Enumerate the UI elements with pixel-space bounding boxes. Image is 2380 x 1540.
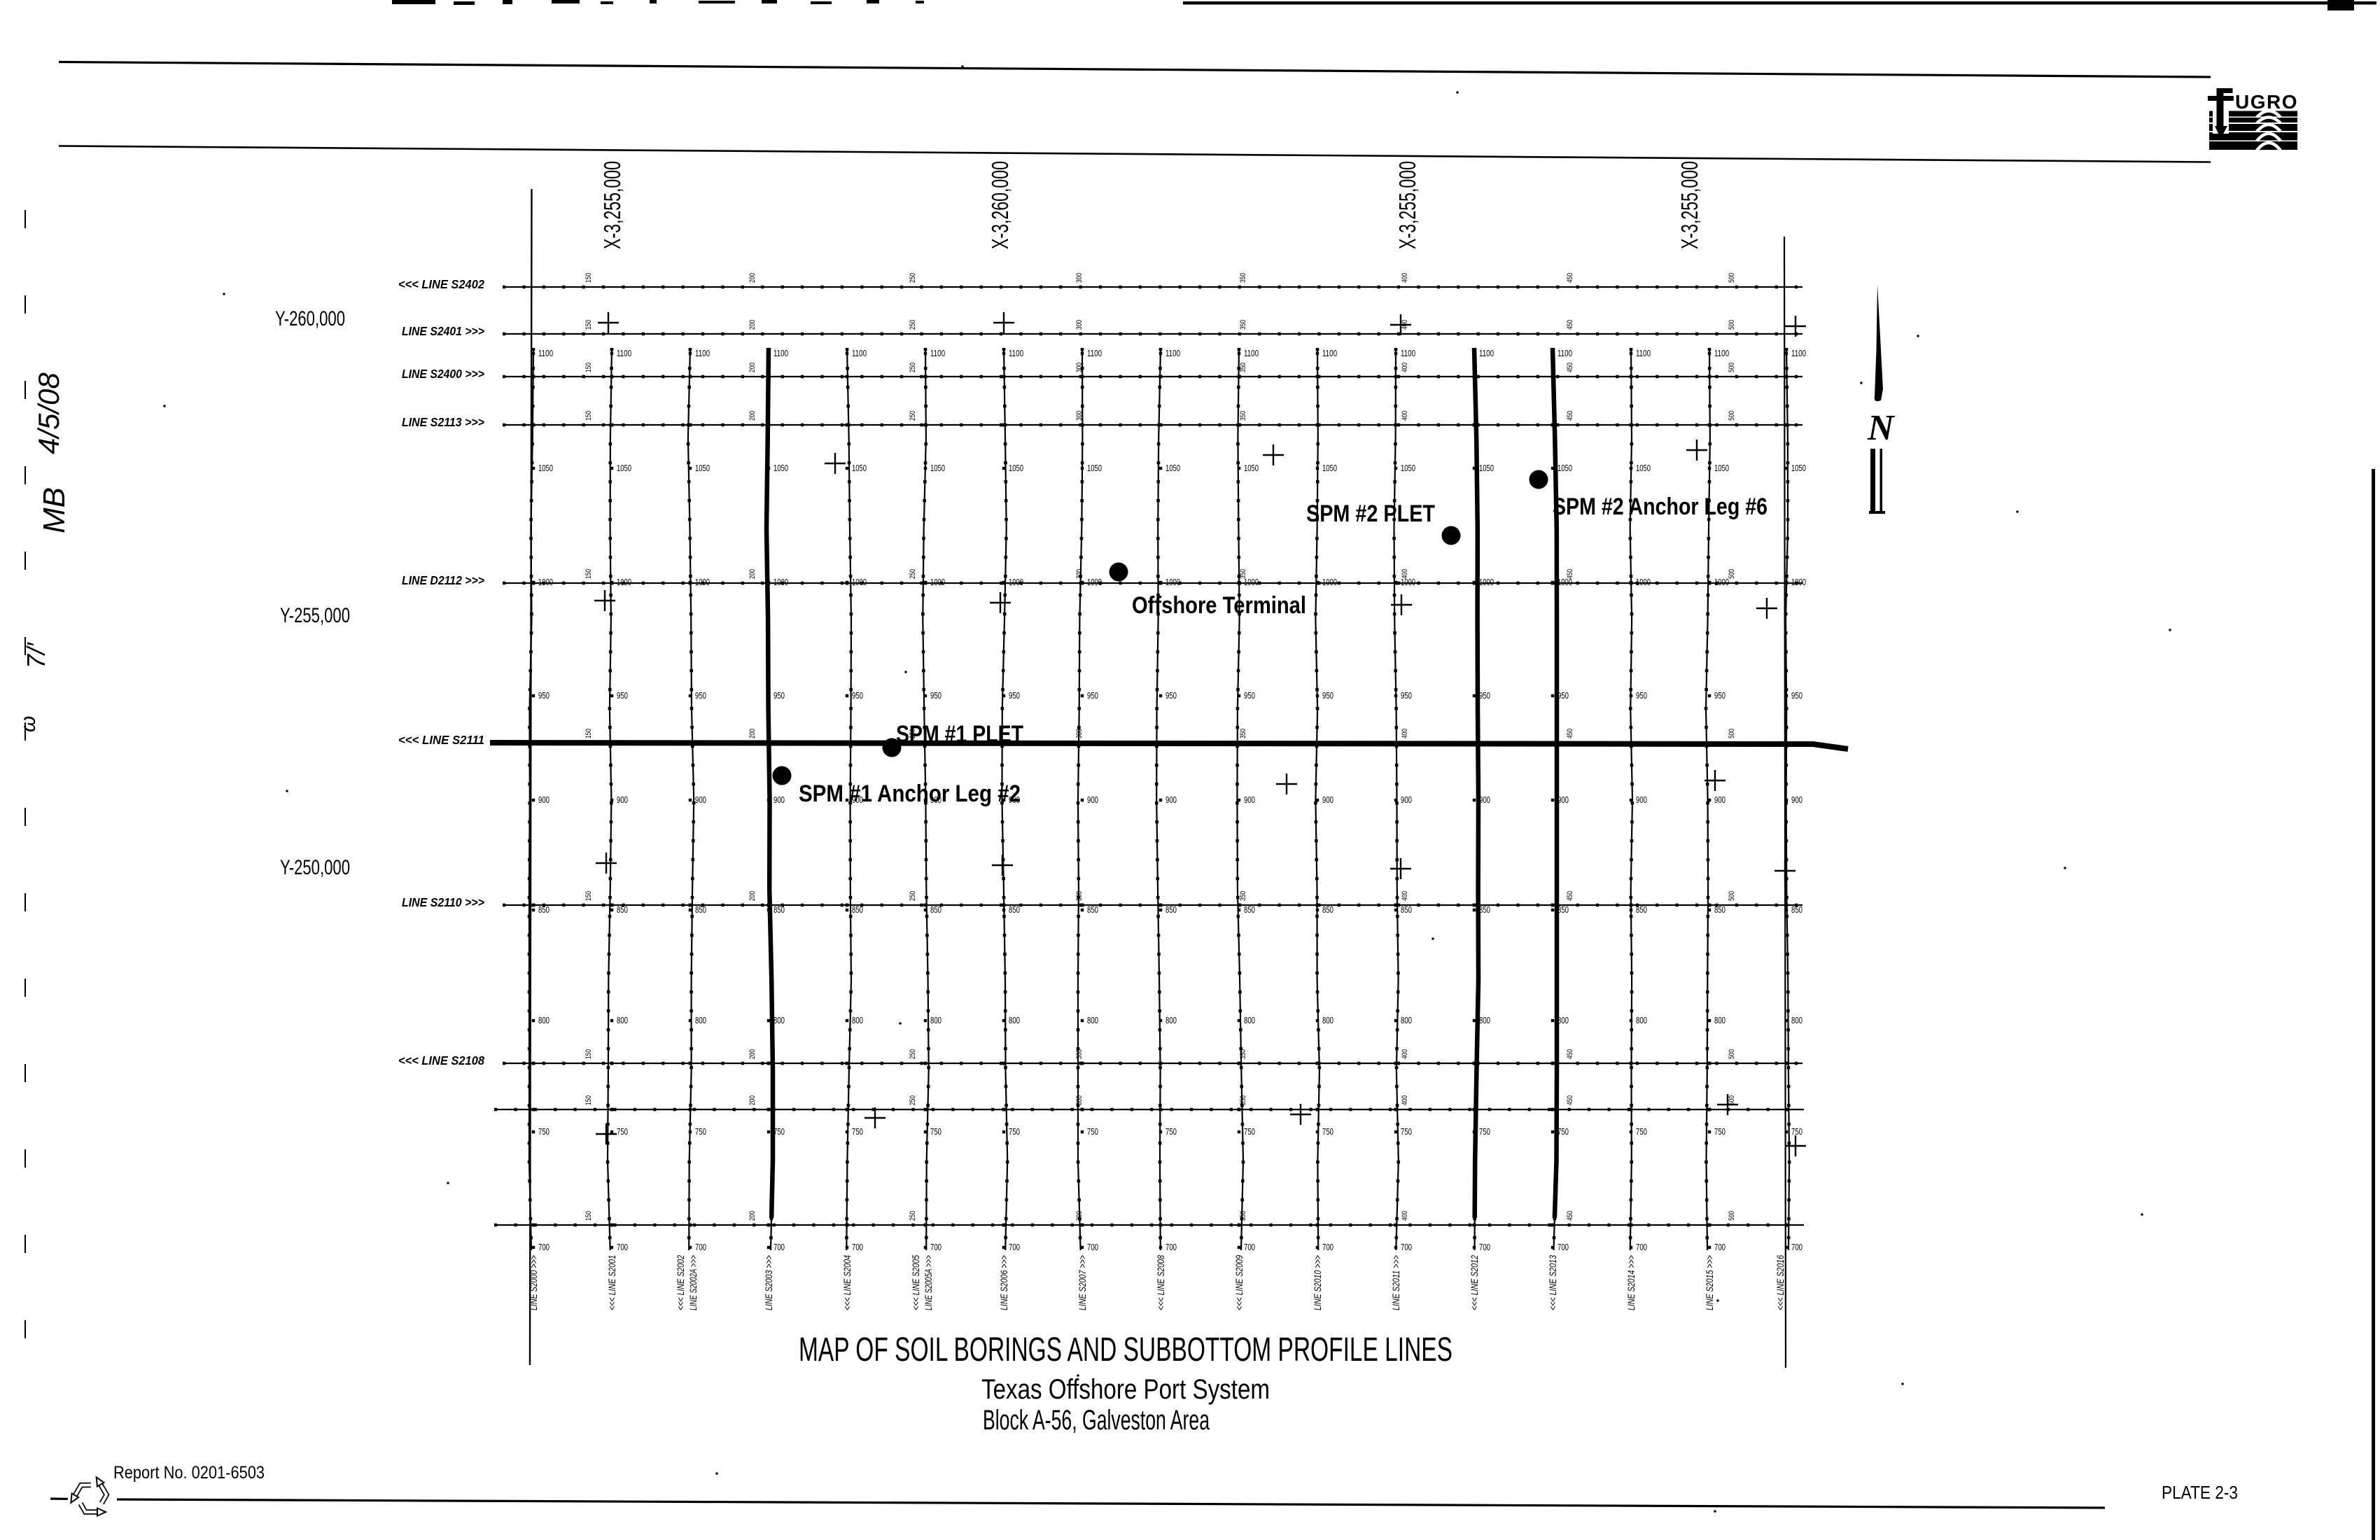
svg-text:250: 250 bbox=[909, 1095, 917, 1105]
svg-text:200: 200 bbox=[748, 363, 757, 372]
svg-text:500: 500 bbox=[1728, 273, 1736, 283]
svg-text:800: 800 bbox=[930, 1016, 941, 1025]
svg-text:850: 850 bbox=[1401, 905, 1412, 915]
svg-text:1050: 1050 bbox=[617, 463, 631, 473]
svg-text:950: 950 bbox=[1087, 691, 1098, 701]
svg-text:LINE S2005A >>>: LINE S2005A >>> bbox=[923, 1255, 934, 1310]
svg-text:950: 950 bbox=[1557, 691, 1569, 701]
svg-text:750: 750 bbox=[930, 1127, 941, 1137]
svg-text:<<< LINE S2009: <<< LINE S2009 bbox=[1233, 1255, 1245, 1310]
svg-text:1100: 1100 bbox=[695, 349, 710, 358]
svg-text:200: 200 bbox=[748, 729, 757, 738]
svg-text:1050: 1050 bbox=[1401, 463, 1415, 473]
svg-text:750: 750 bbox=[1009, 1127, 1020, 1137]
svg-text:250: 250 bbox=[909, 363, 917, 372]
svg-text:950: 950 bbox=[1401, 691, 1412, 701]
svg-text:1100: 1100 bbox=[617, 349, 631, 358]
svg-text:500: 500 bbox=[1728, 320, 1736, 330]
svg-text:200: 200 bbox=[748, 411, 757, 421]
svg-text:<<< LINE S2008: <<< LINE S2008 bbox=[1155, 1255, 1166, 1310]
svg-text:850: 850 bbox=[930, 905, 941, 915]
svg-text:400: 400 bbox=[1401, 363, 1409, 372]
svg-text:450: 450 bbox=[1566, 363, 1574, 372]
svg-text:LINE S2401 >>>: LINE S2401 >>> bbox=[402, 324, 484, 338]
svg-text:1050: 1050 bbox=[1009, 463, 1023, 473]
svg-text:850: 850 bbox=[1165, 905, 1177, 915]
svg-text:200: 200 bbox=[748, 1049, 757, 1059]
svg-text:1100: 1100 bbox=[1401, 349, 1415, 358]
svg-text:150: 150 bbox=[584, 891, 593, 901]
svg-text:1100: 1100 bbox=[538, 349, 553, 358]
svg-text:900: 900 bbox=[1479, 795, 1490, 805]
svg-text:950: 950 bbox=[1791, 691, 1802, 701]
svg-text:850: 850 bbox=[617, 905, 628, 915]
svg-text:LINE S2113 >>>: LINE S2113 >>> bbox=[402, 415, 484, 429]
svg-text:X-3,255,000: X-3,255,000 bbox=[1394, 161, 1420, 249]
svg-text:1050: 1050 bbox=[1244, 463, 1259, 473]
svg-text:350: 350 bbox=[1239, 411, 1247, 421]
svg-text:LINE S2006 >>>: LINE S2006 >>> bbox=[998, 1255, 1009, 1310]
svg-text:LINE S2015 >>>: LINE S2015 >>> bbox=[1704, 1255, 1715, 1310]
svg-text:750: 750 bbox=[1791, 1127, 1802, 1137]
svg-text:900: 900 bbox=[1165, 795, 1177, 805]
svg-text:800: 800 bbox=[1009, 1016, 1020, 1025]
svg-text:1050: 1050 bbox=[1087, 463, 1102, 473]
svg-text:400: 400 bbox=[1401, 273, 1409, 283]
svg-text:900: 900 bbox=[773, 795, 785, 805]
svg-text:700: 700 bbox=[538, 1242, 549, 1252]
svg-text:800: 800 bbox=[1165, 1016, 1177, 1025]
svg-text:500: 500 bbox=[1728, 411, 1736, 421]
svg-text:250: 250 bbox=[909, 273, 917, 283]
svg-text:150: 150 bbox=[584, 1095, 593, 1105]
svg-text:200: 200 bbox=[748, 891, 757, 901]
svg-text:4/5/08: 4/5/08 bbox=[32, 372, 65, 454]
svg-text:700: 700 bbox=[1401, 1242, 1412, 1252]
svg-text:900: 900 bbox=[1322, 795, 1333, 805]
svg-text:150: 150 bbox=[584, 320, 593, 330]
svg-text:1050: 1050 bbox=[1479, 463, 1494, 473]
svg-text:350: 350 bbox=[1239, 273, 1247, 283]
svg-text:LINE S2014 >>>: LINE S2014 >>> bbox=[1625, 1255, 1637, 1310]
svg-text:300: 300 bbox=[1075, 1049, 1084, 1059]
svg-text:800: 800 bbox=[852, 1016, 863, 1025]
svg-text:1000: 1000 bbox=[1087, 577, 1102, 587]
svg-text:450: 450 bbox=[1566, 273, 1574, 283]
svg-text:<<< LINE S2402: <<< LINE S2402 bbox=[398, 277, 484, 291]
svg-text:1050: 1050 bbox=[1714, 463, 1729, 473]
svg-text:1100: 1100 bbox=[1479, 349, 1494, 358]
svg-text:900: 900 bbox=[1714, 795, 1725, 805]
svg-text:750: 750 bbox=[1401, 1127, 1412, 1137]
svg-text:1050: 1050 bbox=[1636, 463, 1651, 473]
svg-text:700: 700 bbox=[1636, 1242, 1647, 1252]
svg-text:700: 700 bbox=[1322, 1242, 1333, 1252]
svg-text:MB: MB bbox=[37, 487, 71, 533]
svg-text:450: 450 bbox=[1566, 891, 1574, 901]
svg-text:1000: 1000 bbox=[1322, 577, 1337, 587]
svg-text:700: 700 bbox=[930, 1242, 941, 1252]
svg-text:PLATE 2-3: PLATE 2-3 bbox=[2162, 1482, 2238, 1503]
svg-text:200: 200 bbox=[748, 569, 757, 579]
svg-text:150: 150 bbox=[584, 1049, 593, 1059]
svg-text:400: 400 bbox=[1401, 729, 1409, 738]
svg-text:950: 950 bbox=[695, 691, 706, 701]
svg-text:200: 200 bbox=[748, 273, 757, 283]
svg-text:800: 800 bbox=[1401, 1016, 1412, 1025]
svg-text:950: 950 bbox=[852, 691, 863, 701]
svg-text:<<< LINE S2001: <<< LINE S2001 bbox=[606, 1255, 617, 1310]
svg-text:1050: 1050 bbox=[930, 463, 945, 473]
svg-text:400: 400 bbox=[1401, 1211, 1409, 1221]
svg-text:250: 250 bbox=[909, 320, 917, 330]
svg-text:850: 850 bbox=[1714, 905, 1725, 915]
svg-text:950: 950 bbox=[930, 691, 941, 701]
svg-text:800: 800 bbox=[1714, 1016, 1725, 1025]
svg-text:850: 850 bbox=[852, 905, 863, 915]
svg-text:700: 700 bbox=[1557, 1242, 1569, 1252]
svg-text:1000: 1000 bbox=[538, 577, 553, 587]
svg-text:750: 750 bbox=[1557, 1127, 1569, 1137]
svg-text:850: 850 bbox=[1791, 905, 1802, 915]
svg-text:700: 700 bbox=[1244, 1242, 1255, 1252]
svg-text:<<< LINE S2004: <<< LINE S2004 bbox=[841, 1255, 853, 1310]
svg-text:1050: 1050 bbox=[1165, 463, 1180, 473]
svg-text:750: 750 bbox=[1714, 1127, 1725, 1137]
svg-text:500: 500 bbox=[1728, 729, 1736, 738]
svg-text:700: 700 bbox=[1087, 1242, 1098, 1252]
svg-text:1050: 1050 bbox=[852, 463, 867, 473]
svg-text:750: 750 bbox=[1244, 1127, 1255, 1137]
svg-text:500: 500 bbox=[1728, 363, 1736, 372]
svg-text:750: 750 bbox=[538, 1127, 549, 1137]
svg-text:LINE S2010 >>>: LINE S2010 >>> bbox=[1312, 1255, 1323, 1310]
svg-text:1100: 1100 bbox=[773, 349, 788, 358]
svg-text:950: 950 bbox=[773, 691, 785, 701]
svg-text:950: 950 bbox=[1009, 691, 1020, 701]
svg-text:700: 700 bbox=[1714, 1242, 1725, 1252]
svg-text:<<< LINE S2002: <<< LINE S2002 bbox=[675, 1255, 686, 1310]
svg-text:1000: 1000 bbox=[1636, 577, 1651, 587]
svg-text:800: 800 bbox=[1557, 1016, 1569, 1025]
svg-text:1000: 1000 bbox=[617, 577, 631, 587]
svg-text:750: 750 bbox=[1636, 1127, 1647, 1137]
svg-text:800: 800 bbox=[1322, 1016, 1333, 1025]
svg-text:N: N bbox=[1867, 408, 1896, 448]
svg-text:350: 350 bbox=[1239, 891, 1247, 901]
svg-text:1000: 1000 bbox=[1479, 577, 1494, 587]
svg-text:<<< LINE S2012: <<< LINE S2012 bbox=[1469, 1255, 1480, 1310]
svg-text:LINE S2003 >>>: LINE S2003 >>> bbox=[763, 1255, 774, 1310]
svg-text:LINE S2007 >>>: LINE S2007 >>> bbox=[1077, 1255, 1088, 1310]
svg-text:750: 750 bbox=[695, 1127, 706, 1137]
svg-text:1050: 1050 bbox=[1557, 463, 1572, 473]
svg-text:Block A-56, Galveston Area: Block A-56, Galveston Area bbox=[983, 1405, 1210, 1436]
svg-text:750: 750 bbox=[617, 1127, 628, 1137]
svg-text:1100: 1100 bbox=[1087, 349, 1102, 358]
svg-text:<<< LINE S2111: <<< LINE S2111 bbox=[398, 733, 484, 747]
svg-text:Y-255,000: Y-255,000 bbox=[280, 604, 350, 627]
svg-text:SPM #1 PLET: SPM #1 PLET bbox=[896, 721, 1023, 748]
svg-text:700: 700 bbox=[852, 1242, 863, 1252]
svg-text:950: 950 bbox=[1244, 691, 1255, 701]
svg-text:700: 700 bbox=[1791, 1242, 1802, 1252]
svg-text:LINE D2112 >>>: LINE D2112 >>> bbox=[402, 573, 484, 587]
svg-text:UGRO: UGRO bbox=[2235, 91, 2298, 113]
svg-text:750: 750 bbox=[1165, 1127, 1177, 1137]
svg-text:450: 450 bbox=[1566, 729, 1574, 738]
svg-text:1000: 1000 bbox=[1557, 577, 1572, 587]
svg-text:300: 300 bbox=[1075, 273, 1084, 283]
svg-text:1050: 1050 bbox=[1322, 463, 1337, 473]
svg-text:Offshore Terminal: Offshore Terminal bbox=[1132, 592, 1306, 619]
svg-text:X-3,255,000: X-3,255,000 bbox=[1676, 161, 1702, 249]
svg-text:250: 250 bbox=[909, 1049, 917, 1059]
svg-text:250: 250 bbox=[909, 411, 917, 421]
svg-text:300: 300 bbox=[1075, 1095, 1084, 1105]
svg-text:250: 250 bbox=[909, 891, 917, 901]
svg-text:800: 800 bbox=[617, 1016, 628, 1025]
svg-text:800: 800 bbox=[695, 1016, 706, 1025]
svg-text:LINE S2000 >>>: LINE S2000 >>> bbox=[528, 1255, 539, 1310]
svg-text:1100: 1100 bbox=[1791, 349, 1806, 358]
svg-text:850: 850 bbox=[1479, 905, 1490, 915]
svg-text:850: 850 bbox=[695, 905, 706, 915]
svg-text:800: 800 bbox=[1479, 1016, 1490, 1025]
svg-text:950: 950 bbox=[1322, 691, 1333, 701]
svg-text:150: 150 bbox=[584, 363, 593, 372]
svg-text:1100: 1100 bbox=[1557, 349, 1572, 358]
svg-text:1000: 1000 bbox=[852, 577, 867, 587]
svg-text:SPM #1 Anchor Leg #2: SPM #1 Anchor Leg #2 bbox=[799, 780, 1021, 807]
svg-text:800: 800 bbox=[1244, 1016, 1255, 1025]
svg-text:1100: 1100 bbox=[1165, 349, 1180, 358]
svg-text:450: 450 bbox=[1566, 320, 1574, 330]
svg-text:700: 700 bbox=[1165, 1242, 1177, 1252]
svg-text:900: 900 bbox=[538, 795, 549, 805]
svg-text:1050: 1050 bbox=[1791, 463, 1806, 473]
svg-text:800: 800 bbox=[773, 1016, 785, 1025]
svg-text:950: 950 bbox=[1479, 691, 1490, 701]
svg-text:700: 700 bbox=[617, 1242, 628, 1252]
svg-text:Texas Offshore Port System: Texas Offshore Port System bbox=[981, 1374, 1270, 1405]
svg-text:LINE S2002A >>>: LINE S2002A >>> bbox=[687, 1255, 699, 1310]
svg-text:500: 500 bbox=[1728, 1049, 1736, 1059]
svg-text:SPM #2 Anchor Leg #6: SPM #2 Anchor Leg #6 bbox=[1553, 493, 1767, 520]
svg-text:150: 150 bbox=[584, 411, 593, 421]
svg-text:950: 950 bbox=[1714, 691, 1725, 701]
svg-text:900: 900 bbox=[1791, 795, 1802, 805]
svg-text:800: 800 bbox=[538, 1016, 549, 1025]
svg-text:750: 750 bbox=[1479, 1127, 1490, 1137]
svg-text:950: 950 bbox=[1636, 691, 1647, 701]
svg-text:750: 750 bbox=[1322, 1127, 1333, 1137]
svg-text:1000: 1000 bbox=[1791, 577, 1806, 587]
svg-text:1100: 1100 bbox=[1322, 349, 1337, 358]
svg-text:750: 750 bbox=[852, 1127, 863, 1137]
svg-text:900: 900 bbox=[1244, 795, 1255, 805]
svg-text:950: 950 bbox=[538, 691, 549, 701]
svg-text:<<< LINE S2108: <<< LINE S2108 bbox=[398, 1053, 484, 1067]
svg-text:Report No. 0201-6503: Report No. 0201-6503 bbox=[113, 1463, 265, 1483]
svg-text:SPM #2 PLET: SPM #2 PLET bbox=[1306, 500, 1435, 527]
svg-text:1000: 1000 bbox=[1165, 577, 1180, 587]
svg-text:1050: 1050 bbox=[695, 463, 710, 473]
svg-text:150: 150 bbox=[584, 273, 593, 283]
svg-text:950: 950 bbox=[1165, 691, 1177, 701]
svg-text:900: 900 bbox=[1557, 795, 1569, 805]
svg-text:850: 850 bbox=[773, 905, 785, 915]
svg-text:500: 500 bbox=[1728, 891, 1736, 901]
svg-text:900: 900 bbox=[1636, 795, 1647, 805]
svg-text:900: 900 bbox=[617, 795, 628, 805]
svg-text:900: 900 bbox=[1401, 795, 1412, 805]
svg-text:850: 850 bbox=[1636, 905, 1647, 915]
svg-text:1000: 1000 bbox=[1009, 577, 1023, 587]
svg-text:800: 800 bbox=[1636, 1016, 1647, 1025]
svg-text:1050: 1050 bbox=[773, 463, 788, 473]
svg-text:Y-260,000: Y-260,000 bbox=[275, 307, 345, 330]
svg-text:1100: 1100 bbox=[852, 349, 867, 358]
svg-text:150: 150 bbox=[584, 729, 593, 738]
svg-text:800: 800 bbox=[1087, 1016, 1098, 1025]
svg-text:200: 200 bbox=[748, 1095, 757, 1105]
svg-text:LINE S2011 >>>: LINE S2011 >>> bbox=[1390, 1255, 1401, 1310]
svg-text:850: 850 bbox=[1087, 905, 1098, 915]
svg-text:200: 200 bbox=[748, 1211, 757, 1221]
svg-text:350: 350 bbox=[1239, 729, 1247, 738]
svg-text:1100: 1100 bbox=[1714, 349, 1729, 358]
svg-text:850: 850 bbox=[1322, 905, 1333, 915]
svg-text:<<< LINE S2005: <<< LINE S2005 bbox=[910, 1255, 921, 1310]
svg-text:<<< LINE S2016: <<< LINE S2016 bbox=[1774, 1255, 1786, 1310]
svg-text:ω: ω bbox=[17, 716, 40, 732]
svg-text:1100: 1100 bbox=[1009, 349, 1023, 358]
svg-text:1100: 1100 bbox=[1636, 349, 1651, 358]
svg-text:1000: 1000 bbox=[1401, 577, 1415, 587]
svg-text:700: 700 bbox=[695, 1242, 706, 1252]
svg-text:1000: 1000 bbox=[1244, 577, 1259, 587]
svg-text:900: 900 bbox=[1087, 795, 1098, 805]
svg-text:300: 300 bbox=[1075, 320, 1084, 330]
svg-text:700: 700 bbox=[1009, 1242, 1020, 1252]
svg-text:450: 450 bbox=[1566, 411, 1574, 421]
svg-text:850: 850 bbox=[538, 905, 549, 915]
svg-text:350: 350 bbox=[1239, 320, 1247, 330]
svg-text:150: 150 bbox=[584, 569, 593, 579]
svg-text:LINE S2400 >>>: LINE S2400 >>> bbox=[402, 367, 484, 381]
svg-text:<<< LINE S2013: <<< LINE S2013 bbox=[1547, 1255, 1558, 1310]
svg-text:1000: 1000 bbox=[1714, 577, 1729, 587]
svg-text:150: 150 bbox=[584, 1211, 593, 1221]
svg-text:Y-250,000: Y-250,000 bbox=[280, 856, 350, 879]
svg-text:450: 450 bbox=[1566, 1049, 1574, 1059]
svg-text:750: 750 bbox=[1087, 1127, 1098, 1137]
svg-text:850: 850 bbox=[1009, 905, 1020, 915]
svg-text:900: 900 bbox=[695, 795, 706, 805]
svg-text:LINE S2110 >>>: LINE S2110 >>> bbox=[402, 895, 484, 909]
svg-text:750: 750 bbox=[773, 1127, 785, 1137]
svg-text:1000: 1000 bbox=[930, 577, 945, 587]
svg-text:450: 450 bbox=[1566, 1095, 1574, 1105]
svg-text:450: 450 bbox=[1566, 1211, 1574, 1221]
svg-text:1000: 1000 bbox=[695, 577, 710, 587]
svg-text:400: 400 bbox=[1401, 1095, 1409, 1105]
svg-text:500: 500 bbox=[1728, 1211, 1736, 1221]
svg-text:400: 400 bbox=[1401, 1049, 1409, 1059]
svg-text:1000: 1000 bbox=[773, 577, 788, 587]
svg-text:850: 850 bbox=[1557, 905, 1569, 915]
svg-text:250: 250 bbox=[909, 1211, 917, 1221]
svg-text:7/′: 7/′ bbox=[22, 642, 50, 668]
svg-text:200: 200 bbox=[748, 320, 757, 330]
svg-text:X-3,260,000: X-3,260,000 bbox=[987, 161, 1013, 249]
svg-text:850: 850 bbox=[1244, 905, 1255, 915]
svg-text:1050: 1050 bbox=[538, 463, 553, 473]
svg-text:700: 700 bbox=[1479, 1242, 1490, 1252]
svg-text:X-3,255,000: X-3,255,000 bbox=[599, 161, 625, 249]
svg-text:800: 800 bbox=[1791, 1016, 1802, 1025]
svg-text:400: 400 bbox=[1401, 891, 1409, 901]
svg-text:250: 250 bbox=[909, 569, 917, 579]
svg-text:700: 700 bbox=[773, 1242, 785, 1252]
svg-text:400: 400 bbox=[1401, 411, 1409, 421]
svg-text:MAP OF SOIL BORINGS AND SUBBOT: MAP OF SOIL BORINGS AND SUBBOTTOM PROFIL… bbox=[799, 1331, 1452, 1368]
svg-text:950: 950 bbox=[617, 691, 628, 701]
svg-text:1100: 1100 bbox=[930, 349, 945, 358]
svg-text:1100: 1100 bbox=[1244, 349, 1259, 358]
